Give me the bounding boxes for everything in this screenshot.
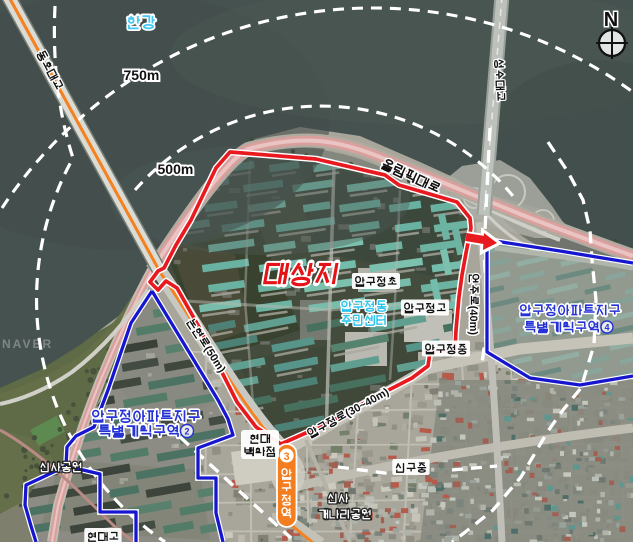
svg-text:500m: 500m <box>158 161 194 177</box>
svg-text:2: 2 <box>184 427 189 437</box>
svg-text:750m: 750m <box>124 67 160 83</box>
svg-text:4: 4 <box>604 323 609 333</box>
svg-text:NAVER: NAVER <box>2 337 53 351</box>
svg-text:(40m): (40m) <box>467 306 479 336</box>
svg-text:3: 3 <box>283 451 289 463</box>
